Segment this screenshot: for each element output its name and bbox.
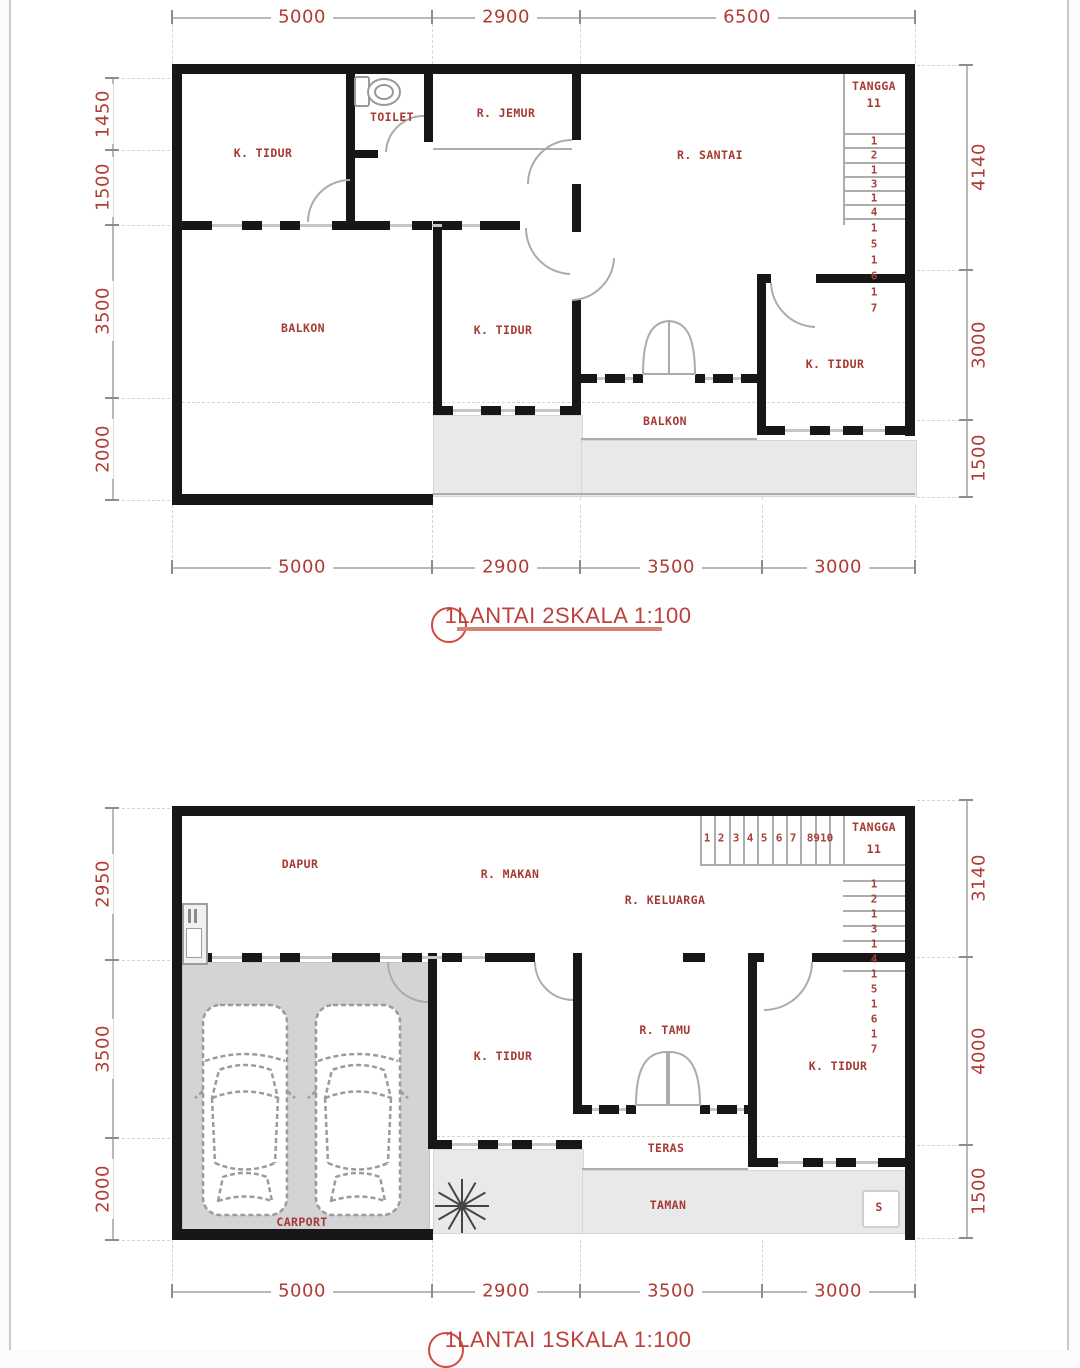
wall <box>683 953 705 962</box>
dimension-tick <box>171 1284 173 1298</box>
room-label-r-makan: R. MAKAN <box>481 867 540 881</box>
wall <box>172 221 212 230</box>
dim-label: 3500 <box>93 281 114 341</box>
stair-tread-line <box>700 864 905 866</box>
wall <box>757 274 766 435</box>
wall <box>172 64 182 505</box>
dim-label: 4000 <box>969 1021 990 1081</box>
dimension-tick <box>171 10 173 24</box>
wall <box>816 274 915 283</box>
stair-step-number: 5 <box>871 983 878 996</box>
garden-floor <box>582 1170 907 1234</box>
extension-line <box>182 402 905 403</box>
stair-step-number: 6 <box>871 270 878 283</box>
wall <box>172 806 182 1240</box>
window-mullion <box>280 953 300 962</box>
stair-step-number: 1 <box>871 908 878 921</box>
stair-step-number: 1 <box>704 832 711 845</box>
extension-line <box>915 24 916 64</box>
dim-label: 2000 <box>93 419 114 479</box>
stair-label: TANGGA <box>852 79 896 93</box>
room-label-toilet: TOILET <box>370 110 414 124</box>
stair-step-number: 1 <box>871 878 878 891</box>
dimension-tick <box>579 10 581 24</box>
extension-line <box>122 78 170 79</box>
room-label-k-tidur: K. TIDUR <box>806 357 865 371</box>
window-mullion <box>836 1158 856 1167</box>
window-mullion <box>803 1158 823 1167</box>
dim-label: 2950 <box>93 854 114 914</box>
dimension-tick <box>105 959 119 961</box>
window-mullion <box>843 426 863 435</box>
stair-tread-line <box>757 816 759 865</box>
stair-step-number: 3 <box>871 923 878 936</box>
wall <box>812 953 915 962</box>
extension-line <box>917 957 965 958</box>
dimension-tick <box>105 77 119 79</box>
dimension-tick <box>105 807 119 809</box>
stair-step-number: 2 <box>871 149 878 162</box>
wall <box>172 64 915 74</box>
dim-label: 3500 <box>640 1281 702 1302</box>
wall <box>581 374 597 383</box>
stair-tread-line <box>433 493 915 495</box>
wall <box>172 1229 433 1240</box>
extension-line <box>580 24 581 64</box>
dim-label: 3000 <box>807 557 869 578</box>
water-fixture-tap <box>194 909 197 923</box>
dim-label: 3140 <box>969 848 990 908</box>
extension-line <box>917 800 965 801</box>
page-edge-left <box>9 0 11 1350</box>
stair-tread-line <box>581 438 757 440</box>
room-label-k-tidur: K. TIDUR <box>474 323 533 337</box>
terrace-floor <box>433 415 583 497</box>
stair-step-number: 1 <box>871 192 878 205</box>
wall <box>573 953 582 1114</box>
dim-label: 1500 <box>969 1161 990 1221</box>
stair-step-number: 5 <box>871 238 878 251</box>
dimension-tick <box>914 1284 916 1298</box>
stair-tread-line <box>582 1168 748 1170</box>
wall <box>572 300 581 415</box>
stair-tread-line <box>700 816 702 865</box>
carport-floor <box>182 962 430 1232</box>
stair-tread-line <box>743 816 745 865</box>
wall <box>332 953 380 962</box>
wall <box>582 1105 592 1114</box>
dimension-tick <box>579 560 581 574</box>
window <box>710 1105 744 1114</box>
dim-label: 3000 <box>807 1281 869 1302</box>
stair-landing-number: 11 <box>867 96 882 110</box>
dimension-tick <box>914 560 916 574</box>
wall <box>741 374 757 383</box>
wall <box>556 1140 582 1149</box>
stair-step-number: 1 <box>871 254 878 267</box>
wall <box>878 1158 915 1167</box>
extension-line <box>917 497 965 498</box>
dim-label: 5000 <box>271 1281 333 1302</box>
wall <box>695 374 705 383</box>
wall <box>748 1158 778 1167</box>
extension-line <box>122 1240 170 1241</box>
room-label-balkon: BALKON <box>643 414 687 428</box>
wall <box>424 64 433 142</box>
wall <box>172 494 433 505</box>
dimension-line <box>966 65 968 497</box>
stair-step-number: 4 <box>747 832 754 845</box>
window-mullion <box>713 374 733 383</box>
extension-line <box>122 960 170 961</box>
water-fixture-basin <box>186 928 202 958</box>
extension-line <box>917 420 965 421</box>
dimension-tick <box>761 1284 763 1298</box>
window-mullion <box>280 221 300 230</box>
window <box>390 221 480 230</box>
window <box>452 1140 556 1149</box>
wall <box>560 406 581 415</box>
stair-step-number: 1 <box>871 938 878 951</box>
wall <box>346 150 378 158</box>
wall <box>748 953 757 1167</box>
window-mullion <box>442 953 462 962</box>
dim-label: 3500 <box>93 1019 114 1079</box>
window <box>212 953 332 962</box>
dim-label: 1500 <box>969 428 990 488</box>
stair-step-number: 4 <box>871 953 878 966</box>
dimension-tick <box>959 419 973 421</box>
wall <box>905 806 915 1240</box>
dimension-tick <box>105 397 119 399</box>
dimension-tick <box>959 1144 973 1146</box>
window-mullion <box>515 406 535 415</box>
dim-label: 2900 <box>475 7 537 28</box>
wall <box>700 1105 710 1114</box>
floor-plan-sheet: 5000 2900 6500 5000 2900 3500 3000 1450 … <box>0 0 1080 1350</box>
stair-tread-line <box>729 816 731 865</box>
wall <box>626 1105 636 1114</box>
stair-step-number: 1 <box>871 998 878 1011</box>
dimension-tick <box>761 560 763 574</box>
extension-line <box>917 1238 965 1239</box>
window-mullion <box>242 221 262 230</box>
dimension-tick <box>959 799 973 801</box>
stair-step-number: 4 <box>871 206 878 219</box>
wall <box>633 374 643 383</box>
window-mullion <box>605 374 625 383</box>
dim-label: 2900 <box>475 557 537 578</box>
window-mullion <box>478 1140 498 1149</box>
window-mullion <box>242 953 262 962</box>
stair-tread-line <box>714 816 716 865</box>
stair-step-number: 2 <box>871 893 878 906</box>
stair-step-number: 1 <box>871 968 878 981</box>
dimension-tick <box>959 956 973 958</box>
septic-marker-label: S <box>875 1200 882 1214</box>
window-mullion <box>810 426 830 435</box>
wall <box>744 1105 757 1114</box>
dim-label: 6500 <box>716 7 778 28</box>
window <box>453 406 560 415</box>
wall <box>480 221 520 230</box>
dim-label: 3500 <box>640 557 702 578</box>
wall <box>572 64 581 140</box>
window-mullion <box>599 1105 619 1114</box>
dimension-tick <box>171 560 173 574</box>
stair-tread-line <box>800 816 802 865</box>
stair-tread-line <box>772 816 774 865</box>
dimension-tick <box>105 224 119 226</box>
dimension-tick <box>959 1237 973 1239</box>
extension-line <box>122 1138 170 1139</box>
stair-step-number: 1 <box>871 135 878 148</box>
dimension-tick <box>579 1284 581 1298</box>
extension-line <box>122 808 170 809</box>
stair-tread-line <box>786 816 788 865</box>
room-label-r-santai: R. SANTAI <box>677 148 743 162</box>
dimension-tick <box>105 499 119 501</box>
window <box>778 1158 878 1167</box>
dimension-tick <box>431 1284 433 1298</box>
stair-step-number: 1 <box>871 1028 878 1041</box>
stair-landing-number: 11 <box>867 842 882 856</box>
extension-line <box>432 24 433 64</box>
stair-step-number: 2 <box>718 832 725 845</box>
dim-label: 5000 <box>271 557 333 578</box>
wall <box>757 426 785 435</box>
window-mullion <box>717 1105 737 1114</box>
window-mullion <box>481 406 501 415</box>
page-edge-right <box>1067 0 1069 1350</box>
extension-line <box>122 150 170 151</box>
window <box>592 1105 626 1114</box>
window <box>212 221 332 230</box>
dim-label: 1450 <box>93 84 114 144</box>
window-mullion <box>412 221 432 230</box>
wall <box>572 184 581 232</box>
dimension-tick <box>914 10 916 24</box>
wall <box>428 953 437 1149</box>
dimension-tick <box>431 10 433 24</box>
dim-label: 2000 <box>93 1159 114 1219</box>
stair-label: TANGGA <box>852 820 896 834</box>
window <box>705 374 741 383</box>
stair-step-number: 6 <box>776 832 783 845</box>
room-label-dapur: DAPUR <box>282 857 319 871</box>
terrace-floor <box>581 440 917 497</box>
wall <box>885 426 915 435</box>
dimension-tick <box>105 149 119 151</box>
wall <box>485 953 535 962</box>
room-label-balkon: BALKON <box>281 321 325 335</box>
garden-floor <box>433 1149 584 1234</box>
plan1-title: 1LANTAI 1SKALA 1:100 <box>445 1327 692 1353</box>
room-label-r-jemur: R. JEMUR <box>477 106 536 120</box>
room-label-k-tidur: K. TIDUR <box>234 146 293 160</box>
extension-line <box>917 270 965 271</box>
extension-line <box>917 1145 965 1146</box>
wall <box>172 806 915 816</box>
extension-line <box>122 225 170 226</box>
stair-step-number: 1 <box>871 222 878 235</box>
wall <box>332 221 390 230</box>
wall <box>346 64 355 230</box>
stair-step-number: 1 <box>871 286 878 299</box>
extension-line <box>917 65 965 66</box>
stair-step-number: 5 <box>761 832 768 845</box>
dimension-tick <box>431 560 433 574</box>
dim-label: 3000 <box>969 315 990 375</box>
window-mullion <box>402 953 422 962</box>
wall <box>433 221 442 415</box>
dimension-tick <box>959 496 973 498</box>
window <box>597 374 633 383</box>
wall <box>433 406 453 415</box>
room-label-k-tidur: K. TIDUR <box>474 1049 533 1063</box>
window <box>785 426 885 435</box>
room-label-k-tidur: K. TIDUR <box>809 1059 868 1073</box>
dim-label: 4140 <box>969 137 990 197</box>
extension-line <box>122 398 170 399</box>
window-mullion <box>442 221 462 230</box>
dimension-tick <box>105 1239 119 1241</box>
stair-step-number: 3 <box>733 832 740 845</box>
dim-label: 1500 <box>93 157 114 217</box>
room-label-r-keluarga: R. KELUARGA <box>625 893 706 907</box>
dim-label: 2900 <box>475 1281 537 1302</box>
extension-line <box>172 24 173 64</box>
room-label-teras: TERAS <box>648 1141 685 1155</box>
stair-step-number: 7 <box>871 1043 878 1056</box>
stair-step-number: 8910 <box>807 832 834 845</box>
room-label-taman: TAMAN <box>650 1198 687 1212</box>
wall <box>905 64 915 436</box>
stair-step-number: 7 <box>871 302 878 315</box>
room-label-r-tamu: R. TAMU <box>639 1023 690 1037</box>
dim-label: 5000 <box>271 7 333 28</box>
stair-step-number: 1 <box>871 164 878 177</box>
water-fixture-tap <box>188 909 191 923</box>
dimension-tick <box>959 64 973 66</box>
dimension-line <box>966 800 968 1238</box>
stair-tread-line <box>843 64 845 225</box>
window-mullion <box>512 1140 532 1149</box>
dimension-tick <box>959 269 973 271</box>
stair-step-number: 6 <box>871 1013 878 1026</box>
room-label-carport: CARPORT <box>276 1215 327 1229</box>
stair-step-number: 7 <box>790 832 797 845</box>
wall <box>428 1140 452 1149</box>
stair-step-number: 3 <box>871 178 878 191</box>
extension-line <box>122 500 170 501</box>
stair-tread-line <box>433 148 572 150</box>
window <box>380 953 485 962</box>
plan2-title: 1LANTAI 2SKALA 1:100 <box>445 603 692 629</box>
dimension-tick <box>105 1137 119 1139</box>
